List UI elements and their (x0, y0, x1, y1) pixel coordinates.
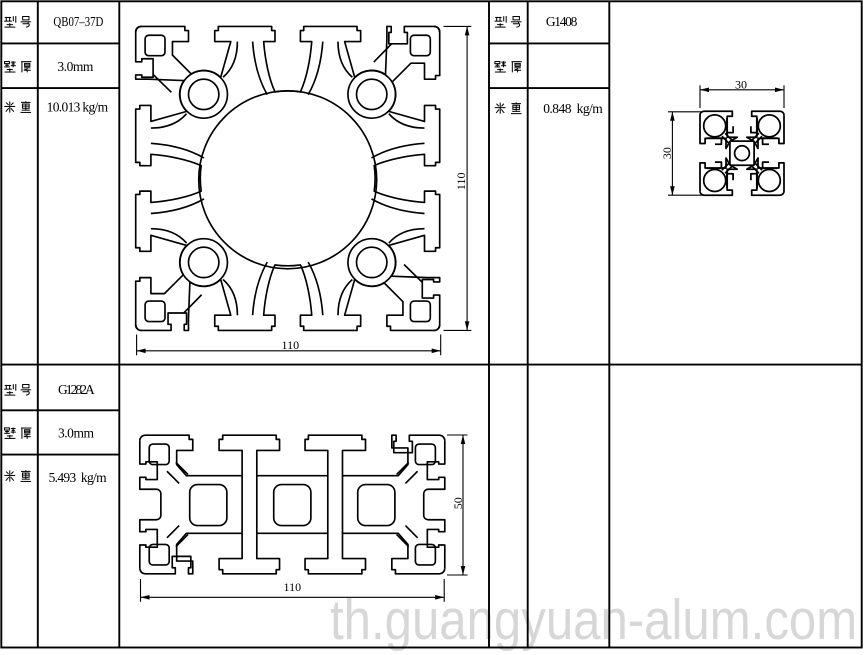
svg-text:5.493 kg/m: 5.493 kg/m (49, 470, 107, 485)
svg-text:30: 30 (735, 77, 747, 91)
svg-text:G1282A: G1282A (58, 382, 95, 397)
svg-text:10.013 kg/m: 10.013 kg/m (47, 100, 109, 115)
svg-text:G1408: G1408 (546, 14, 578, 29)
svg-text:0.848 kg/m: 0.848 kg/m (543, 101, 603, 116)
svg-text:3.0mm: 3.0mm (57, 59, 93, 74)
svg-text:110: 110 (454, 173, 468, 191)
svg-text:110: 110 (284, 580, 302, 594)
svg-text:QB07–37D: QB07–37D (53, 14, 103, 29)
svg-text:110: 110 (282, 338, 300, 352)
svg-text:3.0mm: 3.0mm (58, 426, 94, 441)
